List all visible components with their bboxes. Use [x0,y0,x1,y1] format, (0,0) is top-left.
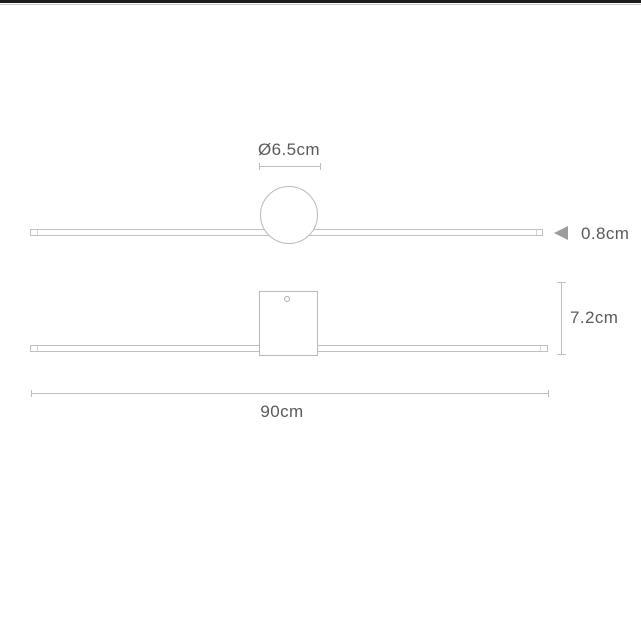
side-bar-endcap-left [37,346,38,351]
top-edge-line [0,0,641,3]
width-dimension-tick-left [31,390,32,397]
height-dimension-label: 7.2cm [570,308,618,328]
thickness-arrow-icon [554,226,568,240]
bar-endcap-right [536,230,537,235]
height-dimension-tick-bottom [557,354,566,355]
top-edge-shadow-line [0,4,641,5]
diameter-dimension-line [259,166,321,167]
screw-hole-icon [284,296,290,302]
height-dimension-tick-top [557,282,566,283]
bar-endcap-left [37,230,38,235]
width-dimension-line [31,393,549,394]
diameter-dimension-tick-left [259,163,260,170]
round-canopy [260,186,318,244]
height-dimension-line [561,282,562,355]
thickness-dimension-label: 0.8cm [581,224,629,244]
side-bar-endcap-right [540,346,541,351]
width-dimension-tick-right [548,390,549,397]
width-dimension-label: 90cm [232,402,332,422]
dimension-drawing: Ø6.5cm 0.8cm 7.2cm 90cm [0,0,641,642]
diameter-dimension-tick-right [320,163,321,170]
diameter-dimension-label: Ø6.5cm [229,140,349,160]
